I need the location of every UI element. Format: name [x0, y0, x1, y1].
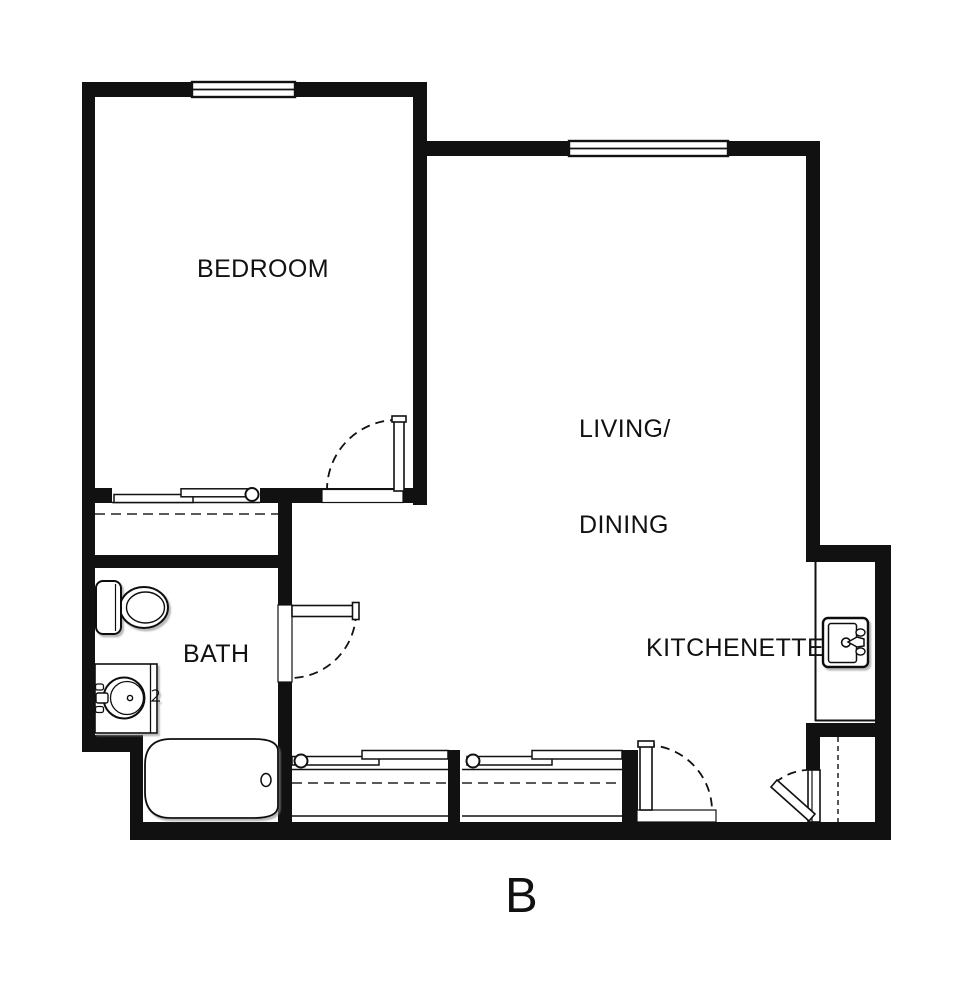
bath-door-jamb — [278, 605, 292, 682]
sliding-door-handle — [295, 755, 308, 768]
walls — [82, 82, 891, 840]
entry-threshold — [637, 810, 716, 822]
bath-door — [292, 603, 359, 679]
kitchen-sink-icon — [823, 618, 868, 667]
room-label-bedroom: BEDROOM — [197, 253, 329, 285]
hall-closet-2 — [462, 751, 622, 817]
vanity-sink-icon — [95, 664, 160, 733]
entry-closet-door — [771, 770, 820, 822]
room-label-kitchenette: KITCHENETTE — [646, 632, 824, 664]
sliding-door-handle — [246, 488, 259, 501]
room-label-living-line2: DINING — [579, 509, 671, 541]
plan-title: B — [505, 868, 538, 924]
bedroom-door — [327, 416, 406, 491]
room-label-living-line1: LIVING/ — [579, 413, 671, 445]
room-label-bath: BATH — [183, 638, 249, 670]
hall-closet-1 — [292, 751, 448, 817]
living-dining-window — [569, 141, 728, 156]
toilet-icon — [96, 581, 168, 634]
bathtub-icon — [145, 739, 278, 818]
entry-door — [638, 741, 712, 810]
room-label-living-dining: LIVING/ DINING — [579, 349, 671, 605]
bedroom-door-threshold — [322, 490, 403, 503]
sliding-door-handle — [467, 755, 480, 768]
bedroom-window — [192, 82, 295, 97]
floorplan-canvas: BEDROOM LIVING/ DINING BATH KITCHENETTE … — [0, 0, 976, 998]
floorplan-drawing — [0, 0, 976, 998]
